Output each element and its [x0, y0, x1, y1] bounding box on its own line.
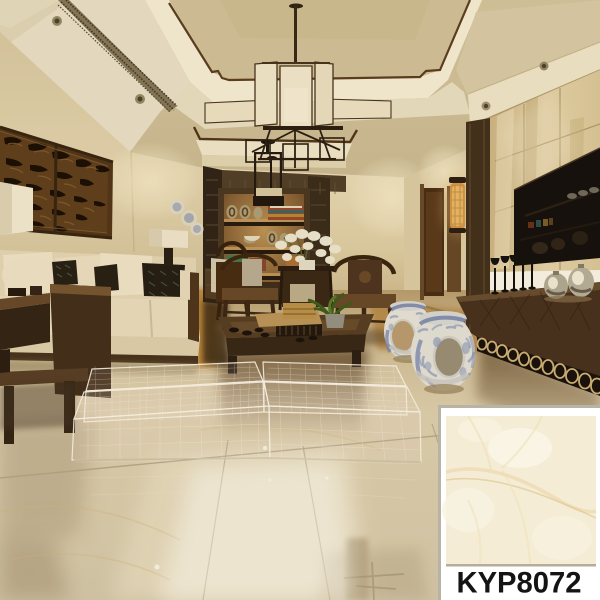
svg-text:KYP8072: KYP8072 — [457, 568, 582, 600]
